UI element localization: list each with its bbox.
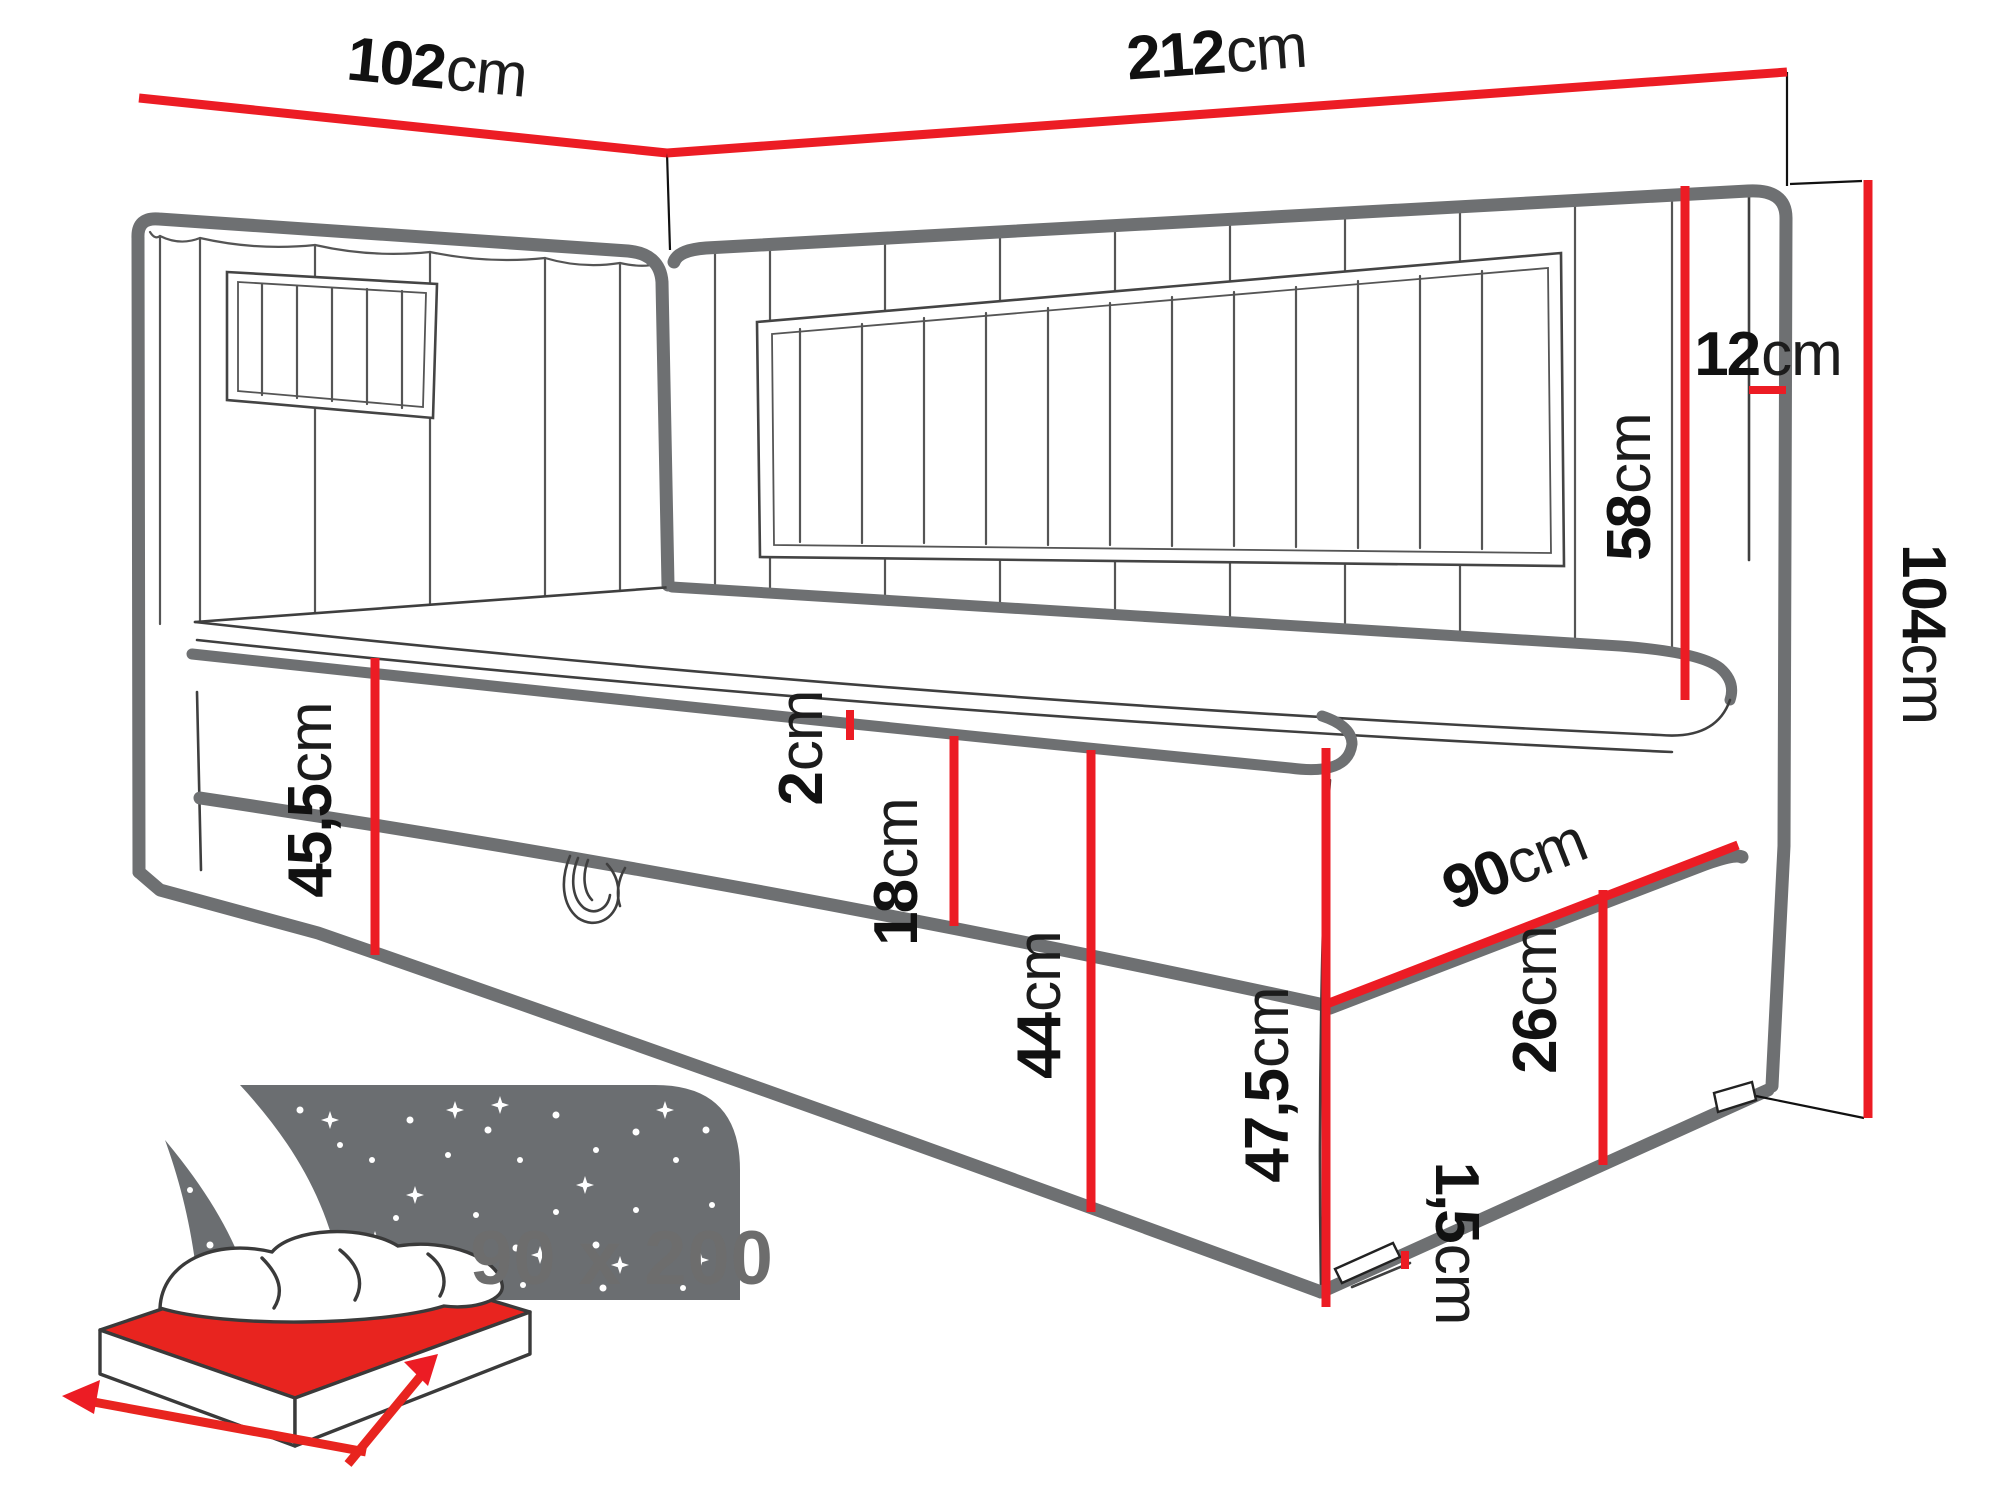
dim-102-label: 102cm bbox=[344, 24, 530, 110]
corner-extension-line bbox=[667, 153, 670, 250]
box-flap-seam bbox=[200, 798, 1324, 1005]
dim-47-5-label: 47,5cm bbox=[1233, 987, 1302, 1182]
length-arrow-head bbox=[62, 1380, 100, 1414]
dim-26-label: 26cm bbox=[1501, 926, 1570, 1074]
height-top-extension-line bbox=[1790, 181, 1862, 184]
dim-2-label: 2cm bbox=[767, 690, 836, 805]
dim-102-line bbox=[139, 98, 667, 153]
back-panel-inset-frame bbox=[757, 253, 1564, 566]
dim-212-label: 212cm bbox=[1124, 12, 1309, 94]
dim-1-5-label: 1,5cm bbox=[1422, 1162, 1491, 1325]
headboard-back-panel bbox=[674, 191, 1786, 1086]
dim-58-label: 58cm bbox=[1595, 413, 1664, 561]
bed-dimension-diagram: 102cm 212cm 12cm 58cm 104cm 2cm 18cm 45,… bbox=[0, 0, 2000, 1500]
box-left-edge bbox=[197, 692, 201, 870]
dim-45-5-label: 45,5cm bbox=[276, 702, 345, 897]
dim-212-line bbox=[667, 72, 1787, 153]
dim-44-label: 44cm bbox=[1005, 931, 1074, 1079]
size-badge: 90 x 200 bbox=[62, 1085, 774, 1464]
back-right-foot bbox=[1714, 1082, 1756, 1112]
dim-104-label: 104cm bbox=[1889, 544, 1958, 724]
dim-18-label: 18cm bbox=[862, 798, 931, 946]
mattress-head-edge bbox=[195, 587, 672, 622]
mattress-size-label: 90 x 200 bbox=[470, 1216, 774, 1301]
dim-12-label: 12cm bbox=[1694, 320, 1842, 389]
headboard-side-panel bbox=[138, 219, 668, 872]
height-bottom-extension-line bbox=[1756, 1096, 1864, 1118]
mattress bbox=[192, 587, 1732, 770]
